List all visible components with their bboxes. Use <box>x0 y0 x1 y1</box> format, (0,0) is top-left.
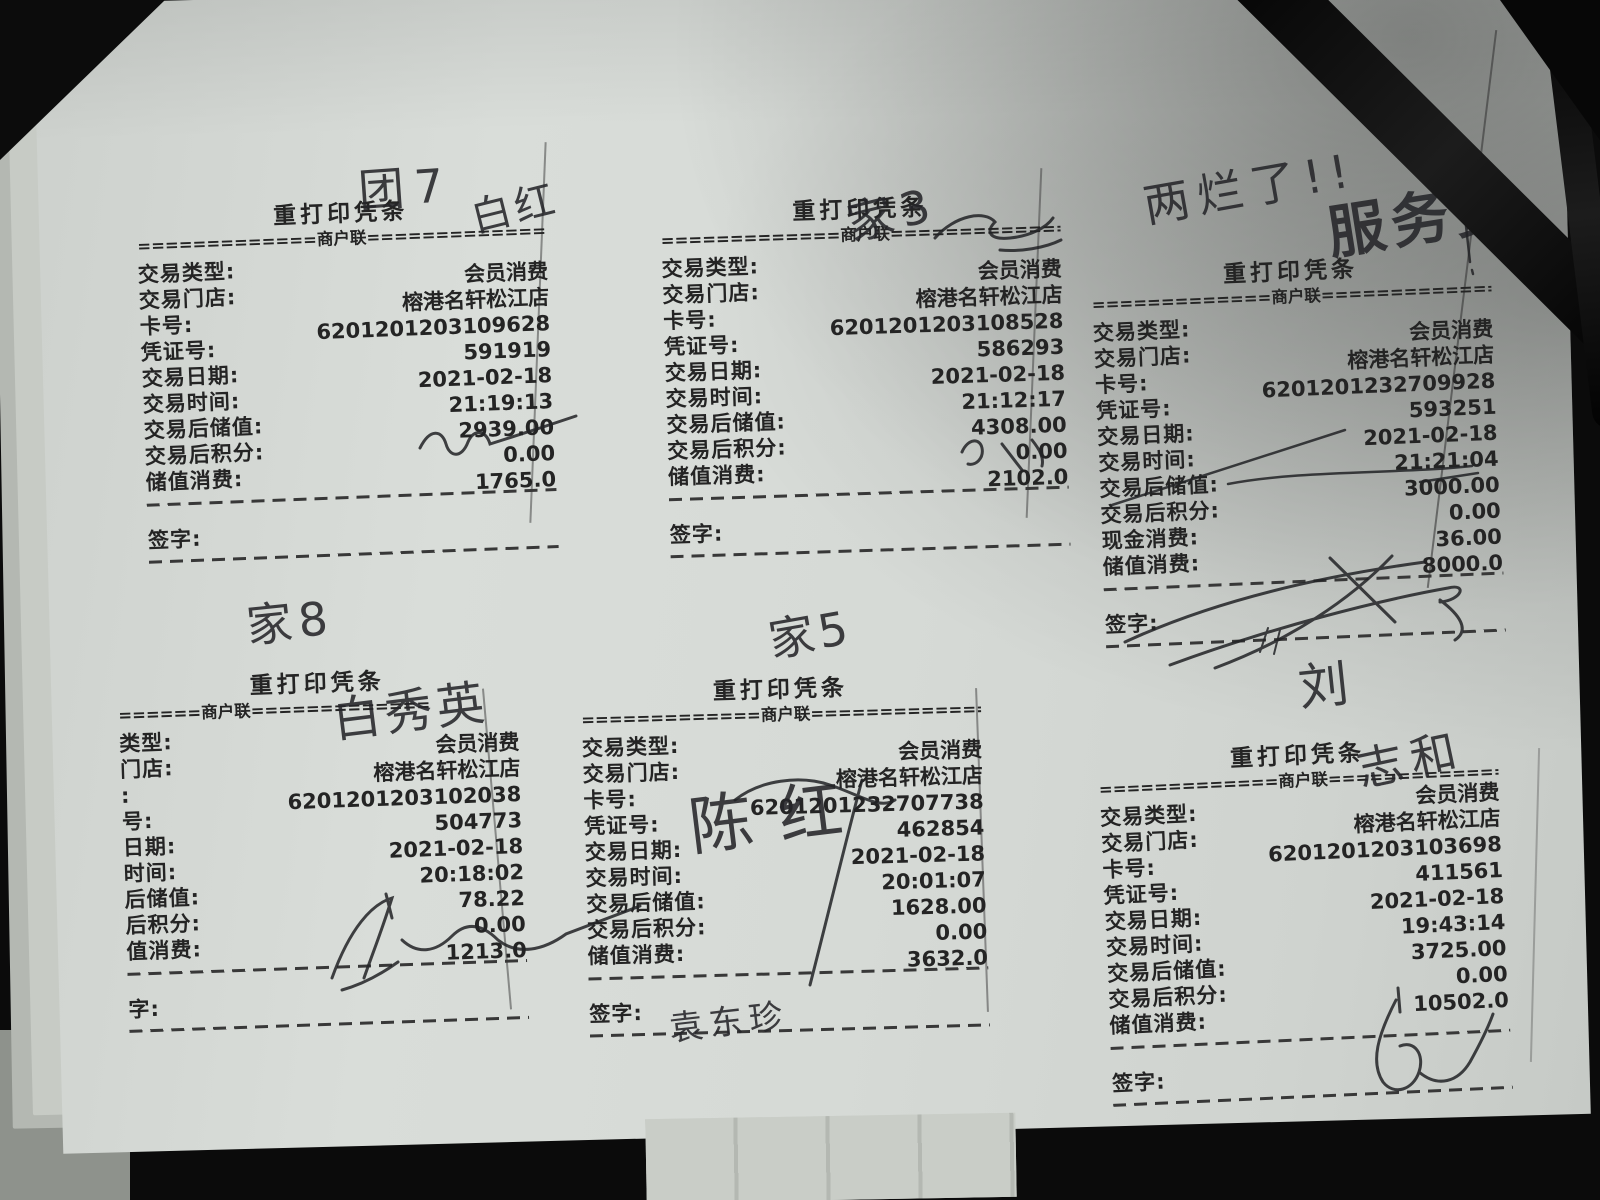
sign-label: 签字: <box>589 997 643 1028</box>
field-label: 交易日期: <box>664 357 762 386</box>
field-label: 日期: <box>122 833 176 861</box>
field-label: 交易后积分: <box>667 435 787 465</box>
field-value: 0.00 <box>1448 498 1501 526</box>
field-label: 储值消费: <box>1109 1009 1207 1039</box>
field-label: 交易后储值: <box>666 409 786 439</box>
field-value: 会员消费 <box>464 258 549 287</box>
photo-scene: 重打印凭条 =============商户联============= 交易类型… <box>0 0 1600 1200</box>
field-label: 后积分: <box>125 910 201 939</box>
field-label: 后储值: <box>124 884 200 913</box>
field-value: 0.00 <box>935 918 988 945</box>
field-label: 交易时间: <box>585 863 683 892</box>
handwritten-table-note: 家8 <box>243 582 337 657</box>
field-value: 会员消费 <box>898 736 983 764</box>
field-value: 0.00 <box>503 440 556 468</box>
field-value: 21:12:17 <box>961 386 1066 415</box>
handwritten-surname: 刘 <box>1294 644 1351 721</box>
field-value: 504773 <box>434 807 523 836</box>
field-value: 3000.00 <box>1404 472 1501 502</box>
field-label: 储值消费: <box>1102 550 1200 580</box>
field-label: 交易时间: <box>665 383 763 412</box>
field-value: 36.00 <box>1435 524 1502 553</box>
field-label: 凭证号: <box>140 337 216 366</box>
field-label: 交易门店: <box>662 279 760 308</box>
field-label: 交易类型: <box>582 733 680 762</box>
field-label: 卡号: <box>1102 855 1157 883</box>
sign-label: 签字: <box>1112 1066 1167 1098</box>
receipt-3: 重打印凭条 =============商户联============= 交易类型… <box>1090 250 1506 648</box>
field-label: 交易门店: <box>1094 342 1192 372</box>
field-value: 0.00 <box>1015 438 1068 466</box>
receipt-1: 重打印凭条 =============商户联============= 交易类型… <box>135 192 558 563</box>
field-value: 10502.0 <box>1413 987 1510 1017</box>
field-label: 值消费: <box>126 936 202 965</box>
field-label: 交易后积分: <box>1100 497 1220 528</box>
field-label: 交易日期: <box>141 362 239 392</box>
field-label: 交易门店: <box>1101 827 1199 857</box>
field-label: 储值消费: <box>145 466 243 496</box>
field-value: 8000.0 <box>1421 550 1503 579</box>
field-value: 411561 <box>1415 857 1504 887</box>
sign-label: 签字: <box>147 523 202 555</box>
field-value: 0.00 <box>1455 961 1508 989</box>
field-label: 卡号: <box>139 312 193 340</box>
field-value: 21:19:13 <box>448 388 553 418</box>
field-value: 586293 <box>976 334 1064 363</box>
field-value: 591919 <box>463 336 552 365</box>
field-label: 交易类型: <box>137 258 235 288</box>
printer-edge <box>645 1113 1016 1200</box>
field-label: 门店: <box>120 755 174 783</box>
field-label: 类型: <box>119 729 173 757</box>
field-value: 会员消费 <box>977 256 1062 285</box>
sign-label: 签字: <box>669 518 723 550</box>
field-label: 凭证号: <box>1096 395 1172 424</box>
field-value: 462854 <box>896 814 984 842</box>
sign-label: 签字: <box>1105 607 1160 639</box>
field-label: 交易类型: <box>661 253 759 282</box>
field-value: 2102.0 <box>987 464 1069 493</box>
field-label: 交易后积分: <box>587 914 707 943</box>
field-value: 3632.0 <box>907 944 989 972</box>
field-label: 卡号: <box>663 307 717 335</box>
handwritten-table-note: 团7 <box>356 149 456 221</box>
field-label: 卡号: <box>1095 370 1149 398</box>
field-label: 交易后储值: <box>586 888 706 917</box>
field-value: 4308.00 <box>971 412 1067 441</box>
field-value: 2939.00 <box>458 414 555 444</box>
field-label: 交易日期: <box>1097 420 1195 450</box>
field-label: 现金消费: <box>1101 524 1199 554</box>
field-label: 卡号: <box>583 786 637 813</box>
field-value: 593251 <box>1408 394 1497 424</box>
field-value: 20:01:07 <box>881 866 986 895</box>
field-label: 时间: <box>123 859 177 887</box>
field-value: 1213.0 <box>445 937 527 966</box>
field-value: 78.22 <box>458 885 525 913</box>
field-label: : <box>121 783 131 809</box>
field-label: 储值消费: <box>587 941 685 970</box>
field-label: 凭证号: <box>584 811 660 839</box>
field-label: 交易时间: <box>142 388 240 418</box>
field-label: 交易后积分: <box>1108 982 1228 1013</box>
field-label: 凭证号: <box>1103 880 1180 909</box>
field-label: 交易门店: <box>138 284 236 314</box>
sign-label: 字: <box>128 993 160 1024</box>
field-label: 交易时间: <box>1098 446 1196 476</box>
field-value: 0.00 <box>474 911 527 939</box>
field-label: 号: <box>122 808 154 835</box>
receipt-6: 重打印凭条 =============商户联============= 交易类型… <box>1097 733 1513 1107</box>
field-label: 交易后积分: <box>144 439 264 470</box>
field-label: 凭证号: <box>664 332 740 360</box>
field-value: 1765.0 <box>475 466 557 495</box>
field-label: 交易门店: <box>582 759 680 788</box>
field-value: 20:18:02 <box>419 859 524 889</box>
field-label: 交易类型: <box>1092 316 1190 346</box>
field-value: 会员消费 <box>1409 316 1494 345</box>
field-label: 交易日期: <box>585 837 683 866</box>
field-label: 储值消费: <box>668 461 766 490</box>
field-value: 1628.00 <box>891 892 987 921</box>
